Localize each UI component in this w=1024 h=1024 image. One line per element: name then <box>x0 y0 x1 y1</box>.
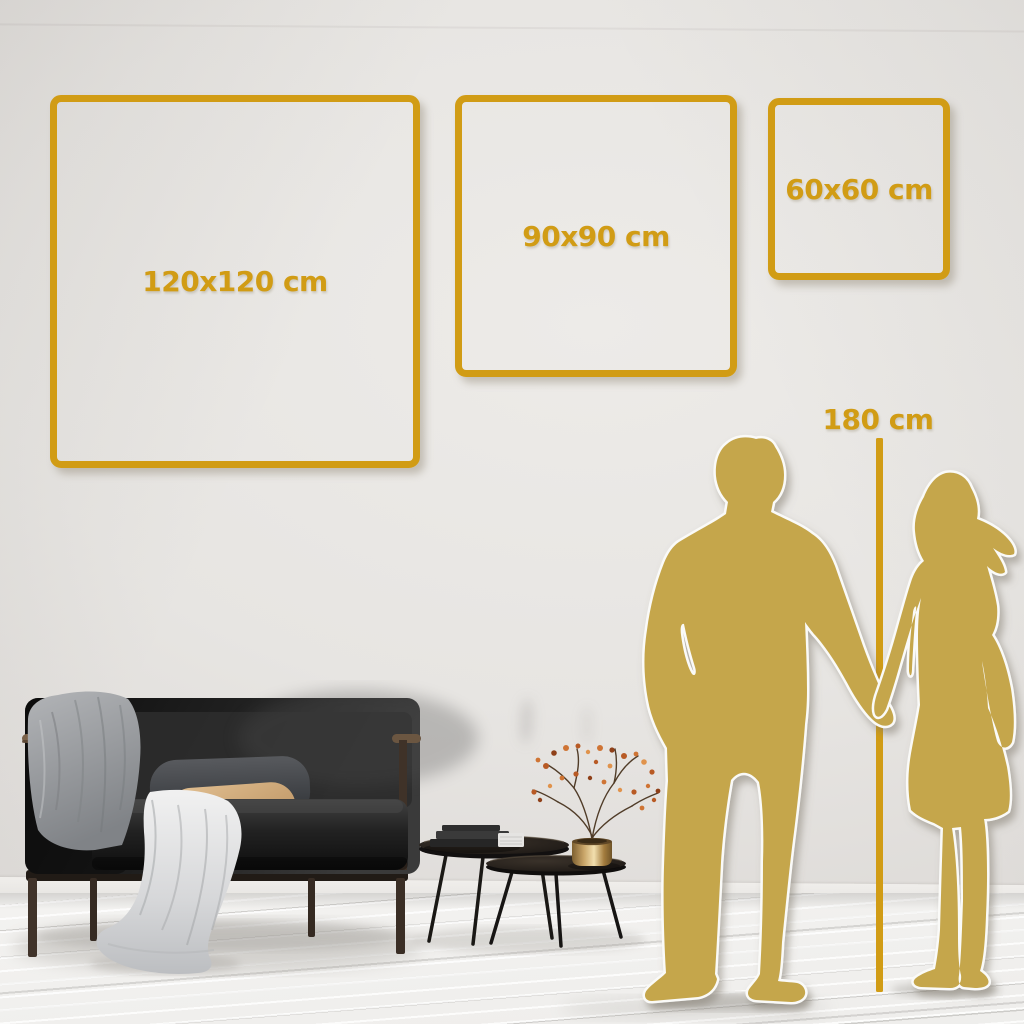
height-reference-label: 180 cm <box>808 403 948 436</box>
throw-blanket <box>28 692 141 851</box>
size-guide-scene: 120x120 cm 90x90 cm 60x60 cm <box>0 0 1024 1024</box>
scene-illustration <box>0 0 1024 1024</box>
man-silhouette <box>644 437 893 1002</box>
nesting-coffee-tables <box>419 744 660 947</box>
woman-silhouette <box>874 473 1014 988</box>
books <box>424 825 524 853</box>
couple-silhouette <box>644 437 1014 1002</box>
brass-vase <box>568 838 620 870</box>
